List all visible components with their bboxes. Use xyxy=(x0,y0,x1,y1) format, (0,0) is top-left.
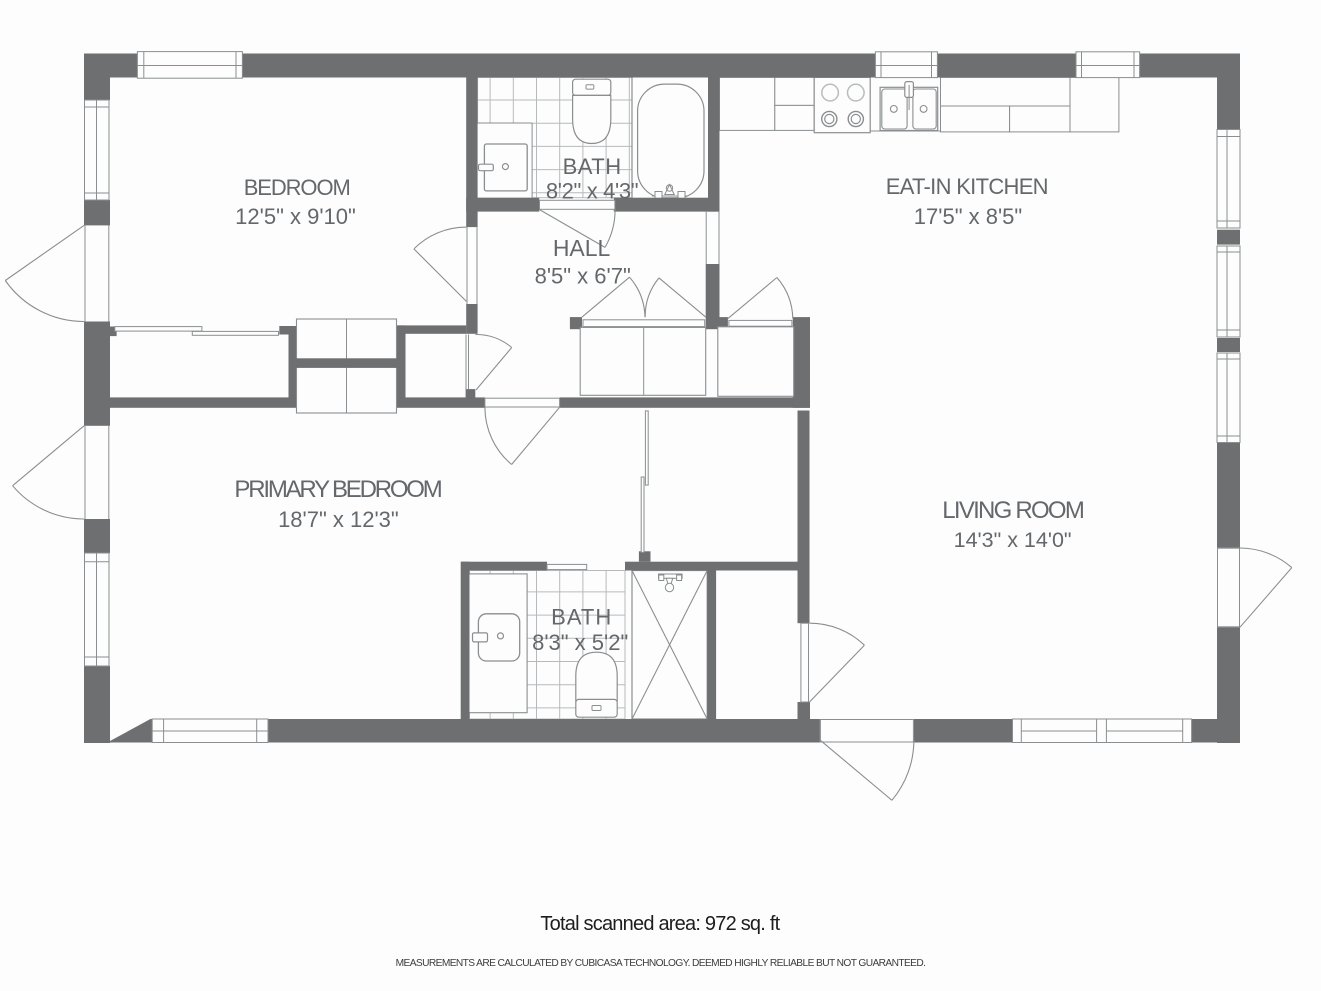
svg-text:18'7" x 12'3": 18'7" x 12'3" xyxy=(278,507,399,532)
svg-text:17'5" x 8'5": 17'5" x 8'5" xyxy=(914,204,1022,229)
svg-text:14'3" x 14'0": 14'3" x 14'0" xyxy=(954,528,1072,552)
svg-text:8'3" x 5'2": 8'3" x 5'2" xyxy=(532,630,628,655)
svg-text:BEDROOM: BEDROOM xyxy=(244,175,350,200)
svg-text:BATH: BATH xyxy=(563,154,622,179)
svg-text:EAT-IN KITCHEN: EAT-IN KITCHEN xyxy=(886,174,1048,199)
svg-text:BATH: BATH xyxy=(551,605,612,630)
svg-text:12'5" x 9'10": 12'5" x 9'10" xyxy=(235,204,356,229)
svg-text:8'2" x 4'3": 8'2" x 4'3" xyxy=(546,179,638,204)
svg-text:Total scanned area: 972 sq. ft: Total scanned area: 972 sq. ft xyxy=(540,913,780,935)
svg-text:LIVING ROOM: LIVING ROOM xyxy=(942,497,1084,524)
svg-text:MEASUREMENTS ARE CALCULATED BY: MEASUREMENTS ARE CALCULATED BY CUBICASA … xyxy=(396,958,926,969)
svg-text:8'5" x 6'7": 8'5" x 6'7" xyxy=(535,264,631,289)
svg-text:PRIMARY BEDROOM: PRIMARY BEDROOM xyxy=(234,476,441,503)
svg-text:HALL: HALL xyxy=(553,235,611,261)
